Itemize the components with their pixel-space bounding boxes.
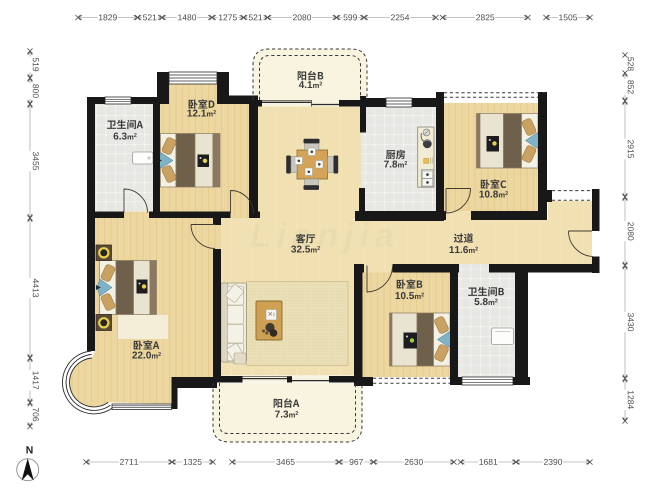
svg-text:Lianjia: Lianjia bbox=[250, 217, 400, 255]
